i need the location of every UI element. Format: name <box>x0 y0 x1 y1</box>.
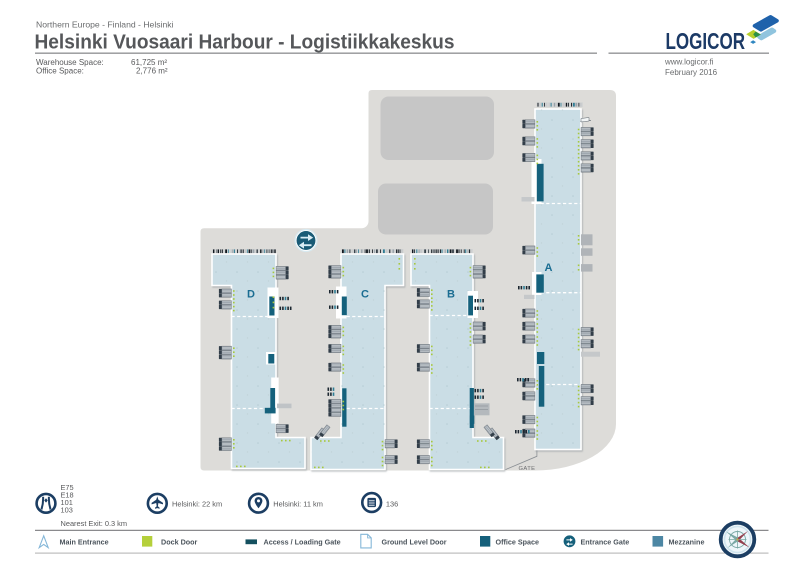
svg-text:Entrance Gate: Entrance Gate <box>581 537 630 546</box>
svg-text:103: 103 <box>61 505 73 514</box>
svg-text:Dock Door: Dock Door <box>161 537 198 546</box>
svg-text:Office Space:: Office Space: <box>36 67 84 76</box>
svg-text:Office Space: Office Space <box>496 537 540 546</box>
svg-text:Northern Europe - Finland - He: Northern Europe - Finland - Helsinki <box>36 21 174 30</box>
svg-text:Access / Loading Gate: Access / Loading Gate <box>264 537 341 546</box>
svg-text:www.logicor.fi: www.logicor.fi <box>664 58 714 67</box>
svg-text:136: 136 <box>386 499 398 508</box>
svg-text:Helsinki: 11 km: Helsinki: 11 km <box>273 499 323 508</box>
svg-text:Nearest Exit: 0.3 km: Nearest Exit: 0.3 km <box>61 519 128 528</box>
svg-text:Helsinki: 22 km: Helsinki: 22 km <box>172 499 222 508</box>
svg-text:B: B <box>447 289 455 301</box>
svg-text:C: C <box>361 289 369 301</box>
svg-text:D: D <box>247 289 255 301</box>
svg-text:Helsinki Vuosaari Harbour - Lo: Helsinki Vuosaari Harbour - Logistiikkak… <box>35 30 455 53</box>
svg-text:LOGICOR: LOGICOR <box>666 28 746 54</box>
svg-text:Mezzanine: Mezzanine <box>669 537 705 546</box>
svg-text:Warehouse Space:: Warehouse Space: <box>36 58 104 67</box>
svg-text:61,725 m²: 61,725 m² <box>131 58 167 67</box>
svg-text:Ground Level Door: Ground Level Door <box>382 537 447 546</box>
svg-text:February 2016: February 2016 <box>665 68 718 77</box>
svg-text:GATE: GATE <box>519 466 536 472</box>
svg-text:Main Entrance: Main Entrance <box>60 537 109 546</box>
svg-text:2,776 m²: 2,776 m² <box>136 67 168 76</box>
svg-text:A: A <box>545 262 553 274</box>
